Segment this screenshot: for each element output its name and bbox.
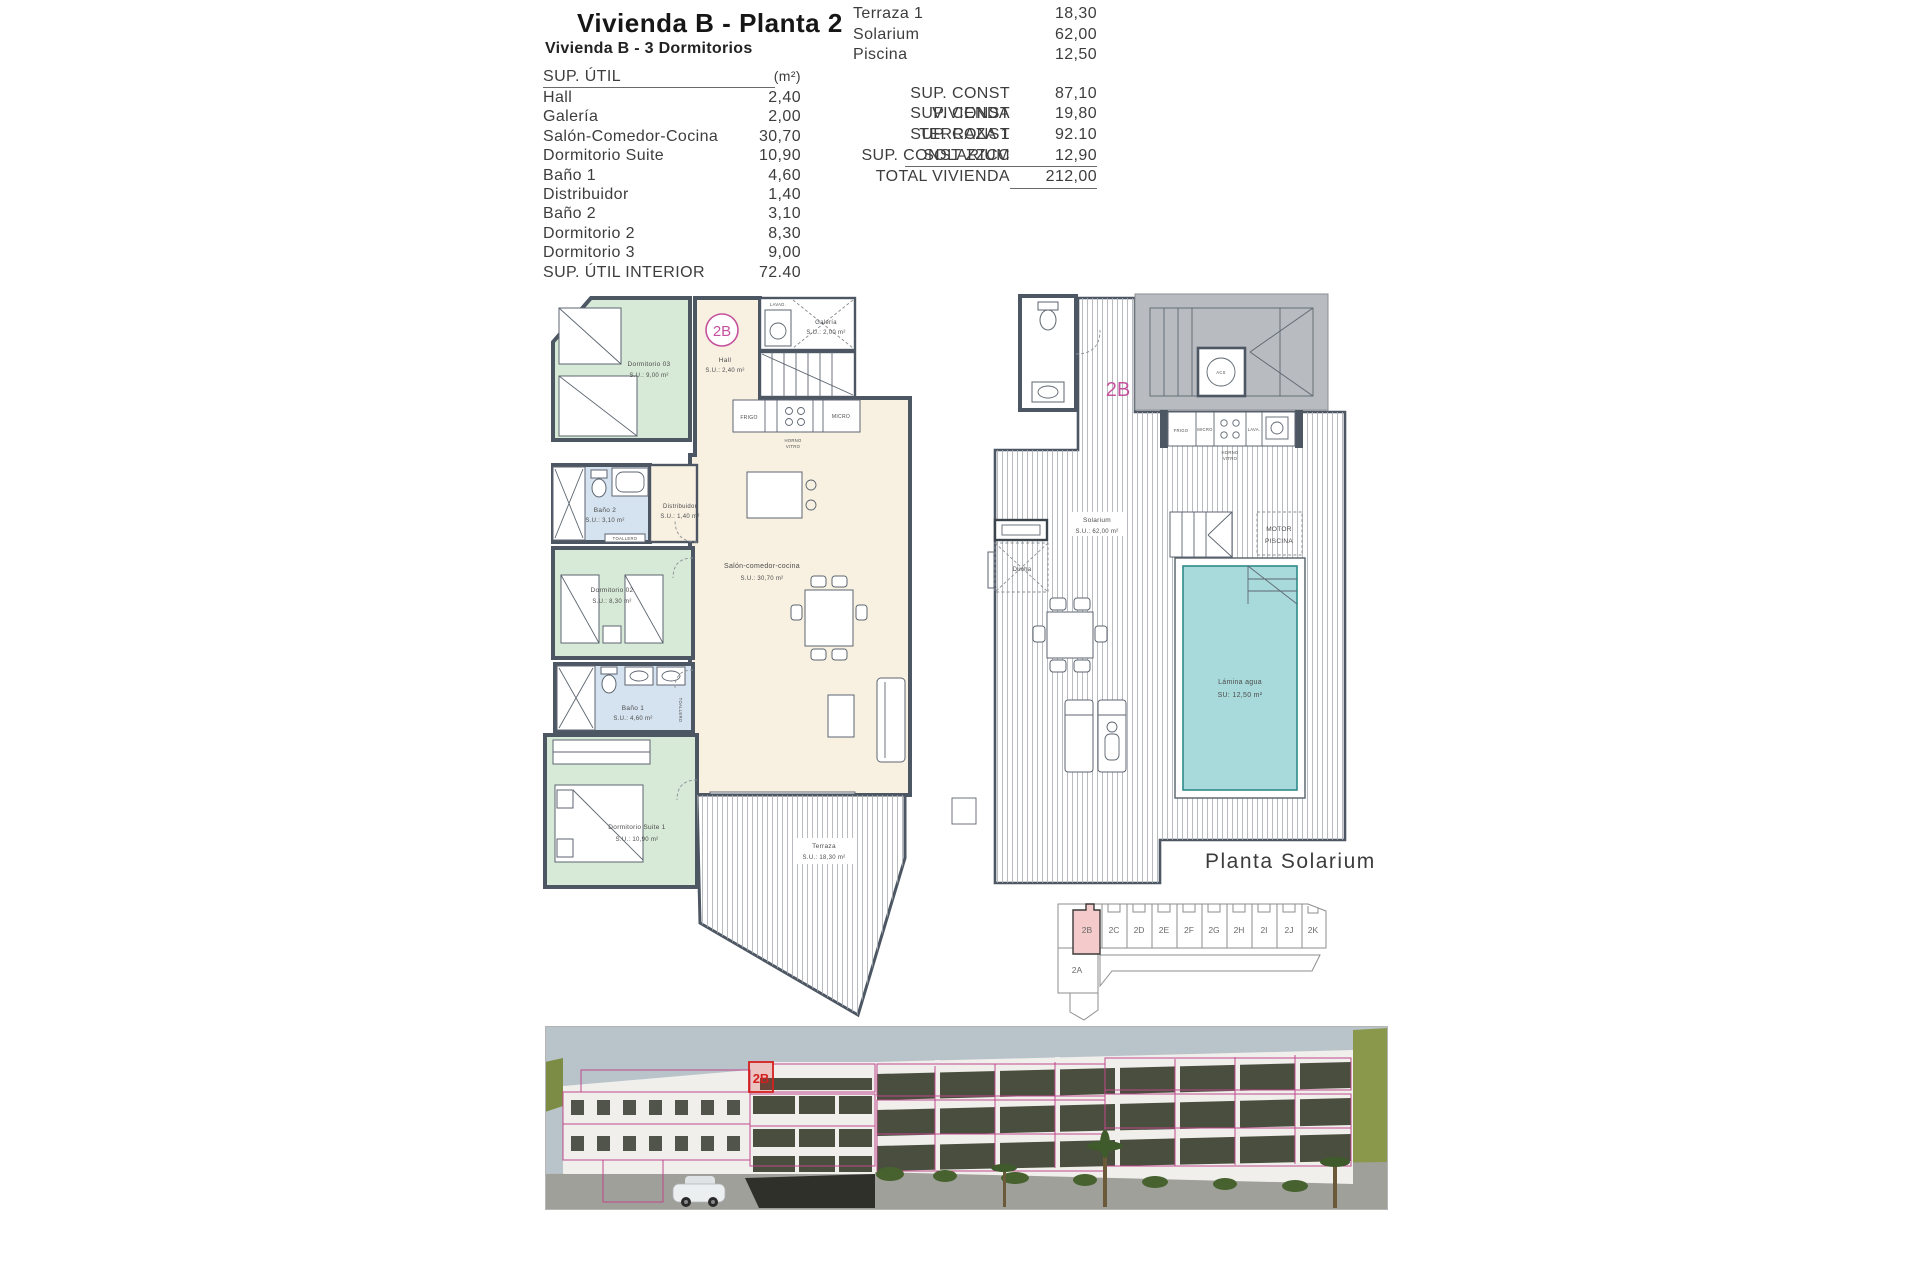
unit-cell-label: 2C — [1109, 925, 1120, 935]
toilet-icon — [1038, 302, 1058, 330]
row-label: Galería — [543, 107, 598, 126]
row-label: Distribuidor — [543, 185, 629, 204]
ducha-label: Ducha — [1013, 567, 1032, 573]
row-value: 9,00 — [768, 243, 801, 262]
table-total-row: TOTAL VIVIENDA212,00 — [853, 167, 1097, 188]
row-value: 18,30 — [1010, 4, 1097, 25]
unit-key-strip: 2B 2C 2D 2E 2F 2G 2H 2I 2J 2K 2A — [1050, 898, 1360, 1028]
table-row: Solarium62,00 — [853, 25, 1097, 46]
unit-cell-label: 2B — [1082, 925, 1093, 935]
pool-area: SU: 12,50 m² — [1218, 692, 1263, 699]
row-label: Salón-Comedor-Cocina — [543, 127, 718, 146]
bano1-label: Baño 1 — [622, 705, 644, 712]
unit-cell-label: 2G — [1208, 925, 1219, 935]
table-total-row: SUP. ÚTIL INTERIOR72.40 — [543, 263, 801, 282]
salon-area: S.U.: 30,70 m² — [741, 576, 784, 582]
row-label: SUP. CONST TERRAZA 1 — [853, 104, 1010, 125]
bathtub-icon — [612, 468, 648, 496]
row-value: 10,90 — [759, 146, 801, 165]
row-value: 30,70 — [759, 127, 801, 146]
row-label: SUP. CONST ZZCC — [853, 146, 1010, 167]
row-label: Dormitorio Suite — [543, 146, 664, 165]
total-value: 72.40 — [759, 263, 801, 282]
frigo-label: FRIGO — [1174, 428, 1189, 433]
row-value: 8,30 — [768, 224, 801, 243]
unit-cell-label: 2I — [1260, 925, 1267, 935]
balcony-bands — [877, 1062, 1351, 1171]
brochure-page: Vivienda B - Planta 2 Vivienda B - 3 Dor… — [0, 0, 1920, 1280]
page-title: Vivienda B - Planta 2 — [577, 8, 843, 39]
table-row: Dormitorio Suite10,90 — [543, 146, 801, 165]
row-label: Piscina — [853, 45, 1010, 66]
row-value: 12,50 — [1010, 45, 1097, 66]
useful-area-table: SUP. ÚTIL (m²) Hall2,40 Galería2,00 Saló… — [543, 64, 801, 282]
room-terraza: Terraza S.U.: 18,30 m² — [697, 795, 905, 1015]
row-label: SUP. CONST SOLARIUM — [853, 125, 1010, 146]
micro-label: MICRO — [832, 414, 850, 420]
vitro-label: VITRO — [786, 444, 801, 449]
header-rule — [543, 87, 775, 88]
table-row: Distribuidor1,40 — [543, 185, 801, 204]
floor-plan-main: LAVAD. Galería S.U.: 2,00 m² FRIGO MICRO — [525, 290, 925, 1030]
table-row: Hall2,40 — [543, 88, 801, 107]
total-label: SUP. ÚTIL INTERIOR — [543, 263, 705, 282]
sofa — [877, 678, 905, 762]
row-label: Terraza 1 — [853, 4, 1010, 25]
unit-cell-label: 2K — [1308, 925, 1319, 935]
hall-label: Hall — [719, 357, 732, 364]
header-unit: (m²) — [774, 68, 801, 84]
micro-label: MICRO — [1197, 427, 1213, 432]
unit-cell-label: 2F — [1184, 925, 1194, 935]
header-label: SUP. ÚTIL — [543, 68, 621, 86]
unit-cell-label: 2J — [1285, 925, 1294, 935]
row-label: Dormitorio 3 — [543, 243, 635, 262]
distribuidor-label: Distribuidor — [663, 504, 697, 510]
row-value: 87,10 — [1010, 84, 1097, 105]
table-row: Salón-Comedor-Cocina30,70 — [543, 127, 801, 146]
terraza-label: Terraza — [812, 843, 836, 850]
horno-label: HORNO — [784, 438, 802, 443]
highlighted-unit-2b: 2B — [749, 1062, 773, 1092]
table-row: SUP. CONST TERRAZA 119,80 — [853, 104, 1097, 125]
table-row: Baño 23,10 — [543, 204, 801, 223]
unit-cell-label: 2E — [1159, 925, 1170, 935]
frigo-label: FRIGO — [740, 415, 757, 421]
dorm3-label: Dormitorio 03 — [628, 361, 671, 368]
table-row: SUP. CONST SOLARIUM92.10 — [853, 125, 1097, 146]
salon-label: Salón-comedor-cocina — [724, 563, 800, 570]
washing-machine-icon — [765, 310, 791, 346]
acs-label: ACS — [1216, 370, 1226, 375]
pool-label: Lámina agua — [1218, 679, 1262, 686]
unit-badge: 2B — [713, 323, 731, 340]
table-row: Dormitorio 28,30 — [543, 224, 801, 243]
sink-icon — [1032, 382, 1064, 402]
pool: Lámina agua SU: 12,50 m² — [1175, 558, 1305, 798]
galeria-label: Galería — [815, 320, 837, 326]
kitchen-island — [747, 472, 802, 518]
bano2-label: Baño 2 — [594, 507, 616, 514]
hill-left — [545, 1058, 563, 1112]
row-value: 1,40 — [768, 185, 801, 204]
row-value: 19,80 — [1010, 104, 1097, 125]
garage-opening — [745, 1174, 875, 1208]
table-row: Terraza 118,30 — [853, 4, 1097, 25]
unit-cell-label: 2A — [1072, 965, 1083, 975]
table-row: Galería2,00 — [543, 107, 801, 126]
dorm3-area: S.U.: 9,00 m² — [629, 373, 668, 379]
room-distribuidor: Distribuidor S.U.: 1,40 m² — [650, 465, 700, 542]
hall-area: S.U.: 2,40 m² — [705, 368, 744, 374]
unit-cell-label: 2D — [1134, 925, 1145, 935]
total-value: 212,00 — [1010, 167, 1097, 188]
toilet-icon — [601, 667, 617, 693]
galeria-area: S.U.: 2,00 m² — [806, 330, 845, 336]
room-dormitorio-3: Dormitorio 03 S.U.: 9,00 m² — [553, 298, 690, 440]
dorm2-area: S.U.: 8,30 m² — [592, 599, 631, 605]
room-galeria: LAVAD. Galería S.U.: 2,00 m² — [760, 298, 855, 350]
row-label: Baño 2 — [543, 204, 596, 223]
suite-label: Dormitorio Suite 1 — [608, 824, 666, 831]
bano1-area: S.U.: 4,60 m² — [613, 716, 652, 722]
room-bano-2: TOALLERO Baño 2 S.U.: 3,10 m² — [553, 465, 650, 542]
stair-core-outline — [1070, 993, 1098, 1020]
coffee-table — [828, 695, 854, 737]
horno-label: HORNO — [1221, 450, 1239, 455]
toallero-label: TOALLERO — [678, 698, 683, 723]
solarium-label: Solarium — [1083, 517, 1111, 524]
total-label: TOTAL VIVIENDA — [853, 167, 1010, 188]
exterior-unit-box — [952, 798, 976, 824]
motor-label-1: MOTOR — [1266, 526, 1292, 533]
row-label: Dormitorio 2 — [543, 224, 635, 243]
room-dormitorio-suite: Dormitorio Suite 1 S.U.: 10,90 m² — [545, 735, 697, 887]
row-value: 62,00 — [1010, 25, 1097, 46]
row-value: 2,40 — [768, 88, 801, 107]
dorm2-label: Dormitorio 02 — [591, 587, 634, 594]
row-label: Solarium — [853, 25, 1010, 46]
staircase — [760, 352, 855, 397]
table-row: Baño 14,60 — [543, 166, 801, 185]
terraza-area: S.U.: 18,30 m² — [803, 855, 846, 861]
row-value: 12,90 — [1010, 146, 1097, 167]
table-header: SUP. ÚTIL (m²) — [543, 64, 801, 88]
table-row: Dormitorio 39,00 — [543, 243, 801, 262]
vitro-label: VITRO — [1223, 456, 1238, 461]
row-value: 2,00 — [768, 107, 801, 126]
lavadora-label: LAVAD. — [770, 302, 786, 307]
row-value: 4,60 — [768, 166, 801, 185]
row-label: Hall — [543, 88, 572, 107]
built-area-table: Terraza 118,30 Solarium62,00 Piscina12,5… — [853, 4, 1097, 189]
row-value: 92.10 — [1010, 125, 1097, 146]
toilet-icon — [591, 470, 607, 497]
corridor-strip — [1100, 955, 1320, 986]
room-dormitorio-2: Dormitorio 02 S.U.: 8,30 m² — [553, 548, 693, 658]
table-row: Piscina12,50 — [853, 45, 1097, 66]
table-row: SUP. CONST VIVIENDA87,10 — [853, 84, 1097, 105]
row-label: SUP. CONST VIVIENDA — [853, 84, 1010, 105]
row-value: 3,10 — [768, 204, 801, 223]
unit-label: 2B — [753, 1071, 770, 1086]
toallero-label: TOALLERO — [613, 536, 638, 541]
solarium-area: S.U.: 62,00 m² — [1076, 529, 1119, 535]
motor-label-2: PISCINA — [1265, 538, 1293, 545]
room-bano-1: TOALLERO Baño 1 S.U.: 4,60 m² — [555, 664, 693, 732]
distribuidor-area: S.U.: 1,40 m² — [660, 514, 699, 520]
solarium-caption: Planta Solarium — [1205, 850, 1376, 874]
building-render: 2B — [545, 1026, 1388, 1210]
unit-badge: 2B — [1106, 379, 1130, 401]
lava-label: LAVA. — [1248, 427, 1261, 432]
table-row: SUP. CONST ZZCC12,90 — [853, 146, 1097, 167]
row-label: Baño 1 — [543, 166, 596, 185]
access-stairs — [1170, 512, 1232, 557]
suite-area: S.U.: 10,90 m² — [616, 837, 659, 843]
solarium-staircase: ACS — [1135, 294, 1328, 410]
total-underline — [1010, 188, 1097, 189]
bano2-area: S.U.: 3,10 m² — [585, 518, 624, 524]
floor-plan-solarium: ACS 2B FRIGO MICRO HORNO VITRO LAVA. — [950, 290, 1400, 910]
page-subtitle: Vivienda B - 3 Dormitorios — [545, 40, 753, 58]
unit-cell-label: 2H — [1234, 925, 1245, 935]
